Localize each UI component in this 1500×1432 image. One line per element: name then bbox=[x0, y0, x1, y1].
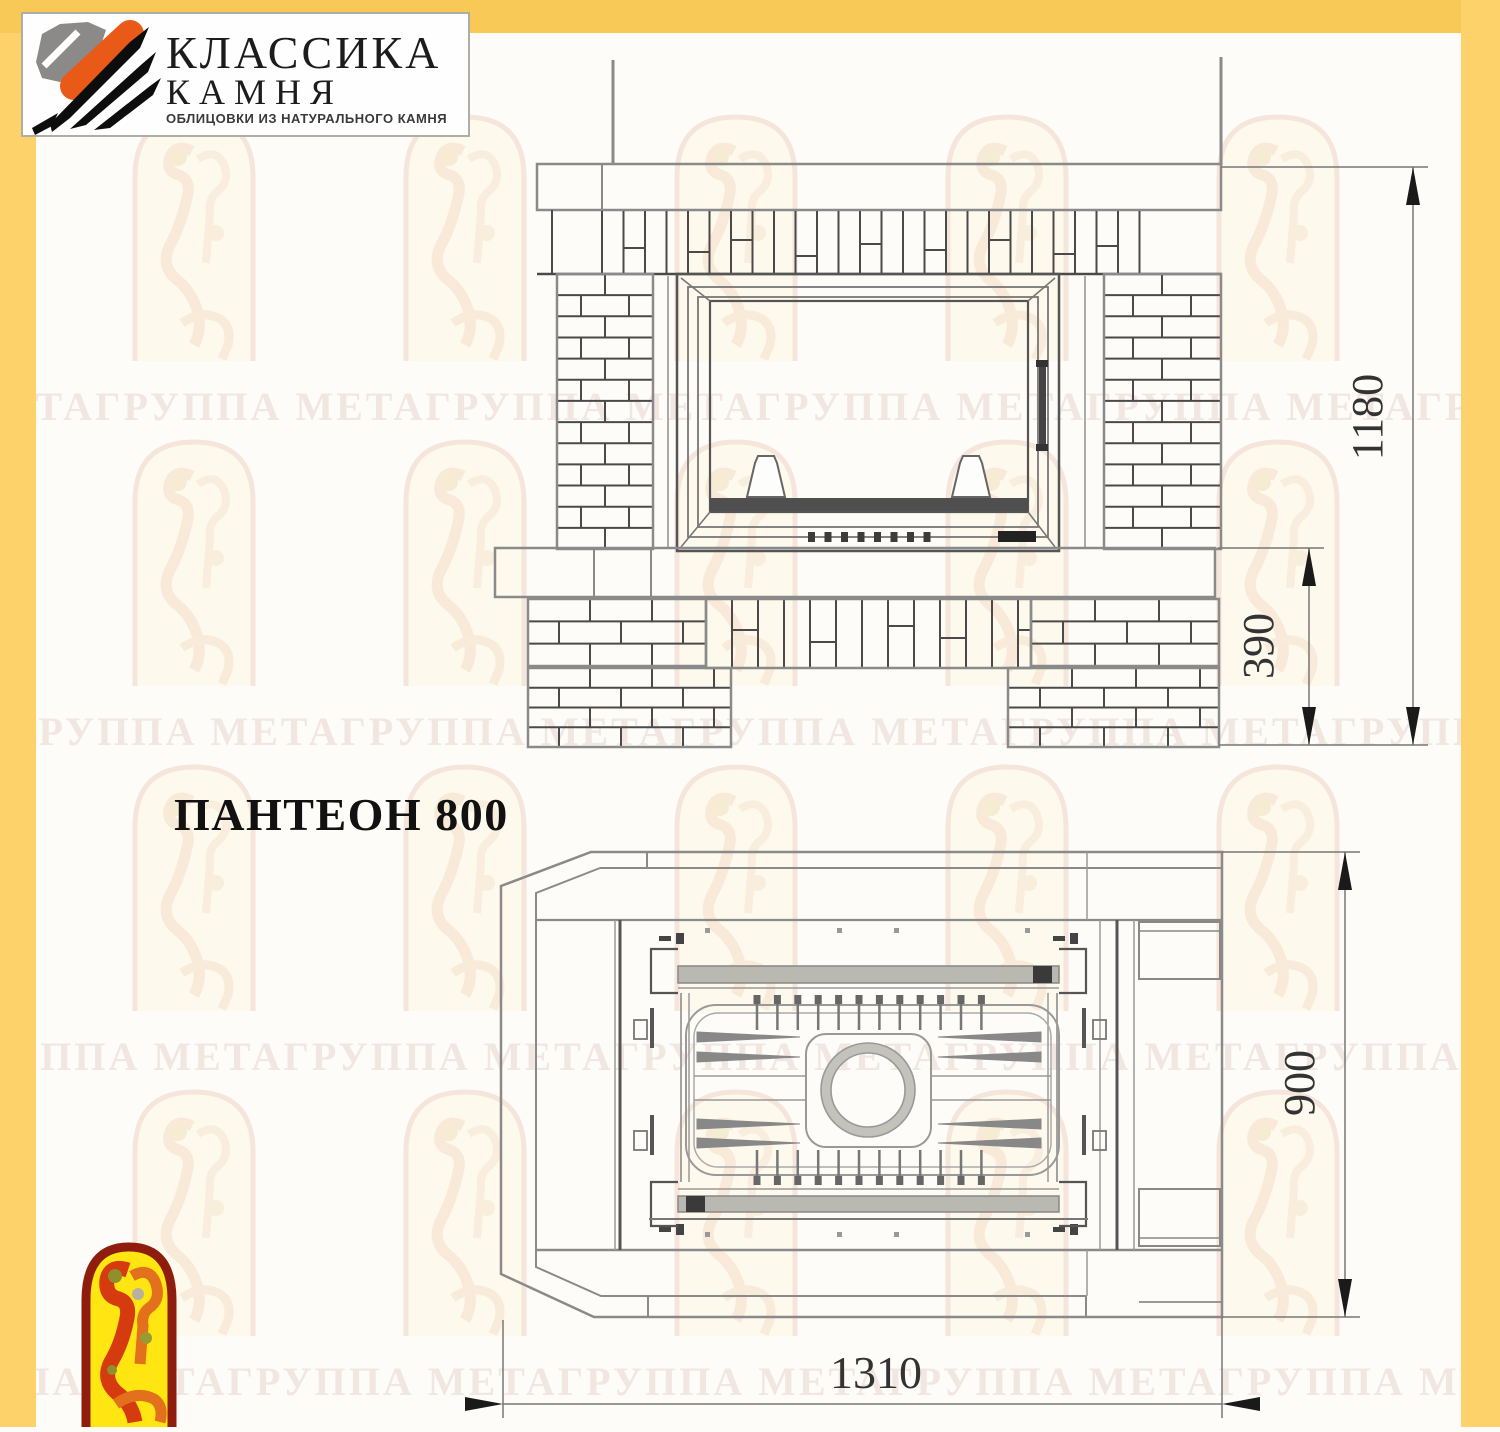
svg-text:МЕТАГРУППА МЕТАГРУППА МЕТАГРУП: МЕТАГРУППА МЕТАГРУППА МЕТАГРУППА МЕТАГРУ… bbox=[0, 384, 1500, 429]
svg-text:900: 900 bbox=[1275, 1050, 1324, 1116]
svg-text:МЕТАГРУППА МЕТАГРУППА МЕТАГРУП: МЕТАГРУППА МЕТАГРУППА МЕТАГРУППА МЕТАГРУ… bbox=[0, 1359, 1500, 1404]
svg-text:1310: 1310 bbox=[830, 1347, 922, 1398]
svg-text:КЛАССИКА: КЛАССИКА bbox=[166, 27, 441, 78]
svg-text:КАМНЯ: КАМНЯ bbox=[166, 72, 343, 112]
svg-text:МЕТАГРУППА МЕТАГРУППА МЕТАГРУП: МЕТАГРУППА МЕТАГРУППА МЕТАГРУППА МЕТАГРУ… bbox=[0, 709, 1500, 754]
svg-text:ПАНТЕОН 800: ПАНТЕОН 800 bbox=[174, 789, 509, 840]
svg-text:390: 390 bbox=[1234, 613, 1283, 679]
svg-text:1180: 1180 bbox=[1343, 374, 1392, 460]
svg-text:ОБЛИЦОВКИ ИЗ НАТУРАЛЬНОГО КАМН: ОБЛИЦОВКИ ИЗ НАТУРАЛЬНОГО КАМНЯ bbox=[166, 111, 447, 126]
